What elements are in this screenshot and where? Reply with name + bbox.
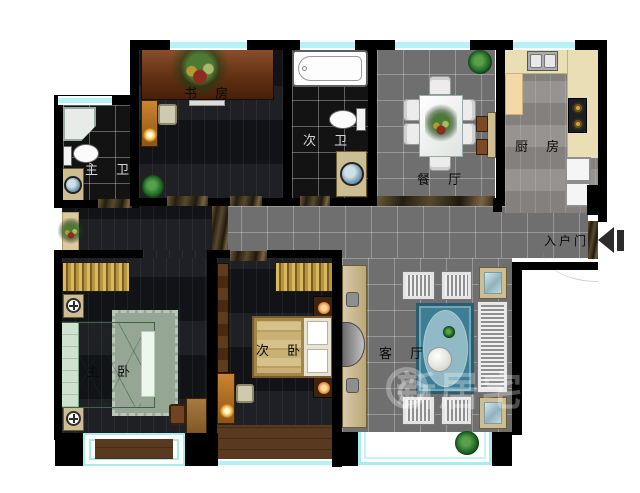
entrance-arrow-icon — [598, 227, 626, 254]
toilet-master-tank — [63, 146, 72, 166]
floorplan-canvas: 书 房 次 卫 主 卫 餐 厅 厨 房 入户门 主 卧 次 卧 客 厅 新居宅配 — [0, 0, 640, 493]
tv-cabinet-speaker-1 — [346, 292, 359, 307]
wall-study-west — [130, 40, 139, 206]
threshold-corridor-hall — [212, 206, 228, 253]
wall-bath-master-bottom-b — [132, 200, 139, 208]
nightstand-second-2 — [313, 376, 333, 398]
bathtub-inner — [298, 56, 362, 81]
lamp-symbol-icon — [66, 411, 81, 426]
wardrobe-master — [62, 262, 130, 292]
balcony-master — [83, 433, 185, 466]
kitchen-sink-basin-1 — [530, 54, 542, 68]
bar-stool-1 — [476, 116, 488, 132]
study-chair — [158, 104, 177, 125]
wall-second-top-a — [217, 250, 230, 258]
armchair-top-2 — [441, 271, 472, 300]
lamp-icon — [318, 382, 330, 394]
side-table-glass — [484, 272, 502, 294]
bathtub-drain — [302, 66, 307, 71]
dining-chair-left-1 — [403, 99, 420, 121]
wall-kitchen-stub-b — [587, 185, 600, 215]
stove-burner-2 — [572, 118, 584, 130]
study-plant-icon — [142, 175, 164, 198]
toilet-second-tank — [356, 108, 366, 131]
bar-counter — [487, 112, 496, 158]
dining-chair-left-2 — [403, 123, 420, 145]
toilet-second-bowl — [329, 110, 357, 129]
kitchen-cabinet-1 — [565, 157, 591, 182]
vanity-second — [336, 151, 367, 197]
threshold-bath-master — [98, 199, 132, 208]
bed-master-pillows — [61, 323, 79, 407]
armchair-top-1 — [402, 271, 435, 300]
watermark-text: 新居宅配 — [396, 359, 568, 417]
wall-second-living — [332, 250, 342, 425]
wall-second-top-b — [267, 250, 332, 258]
bed-second-headboard — [304, 318, 331, 376]
bedroom-second-chair — [236, 384, 254, 403]
balcony-master-floor — [95, 439, 173, 459]
balcony-second-floor — [217, 425, 332, 461]
bedroom-second-lamp-icon — [220, 404, 234, 418]
wall-study-bath — [283, 40, 292, 206]
wall-west-upper — [54, 95, 63, 208]
sink-basin-second-icon — [340, 162, 364, 186]
bed-master-blanket — [141, 331, 155, 397]
threshold-bedroom-second-door — [230, 251, 267, 261]
wall-study-bottom-c — [262, 198, 283, 206]
room-label-dining: 餐 厅 — [417, 169, 468, 188]
wall-hall-south — [512, 262, 598, 270]
wall-south-c — [332, 424, 342, 467]
pillow-1 — [307, 321, 328, 345]
entrance-arrow-head — [598, 227, 614, 253]
vanity-master — [62, 168, 84, 202]
stove-burner-1 — [572, 102, 584, 114]
wall-west-lower — [54, 250, 62, 440]
room-label-bath-master: 主 卫 — [85, 159, 136, 178]
nightstand-master-1 — [63, 294, 84, 318]
bedroom-second-cabinet — [217, 263, 229, 373]
threshold-study-door — [230, 196, 262, 206]
threshold-corridor-north — [167, 196, 208, 206]
window-bath-second — [300, 40, 355, 50]
dining-centerpiece-icon — [425, 104, 457, 146]
bedroom-master-door-opening — [143, 250, 207, 258]
wall-dining-kitchen — [496, 40, 505, 206]
wall-master-second — [207, 250, 217, 440]
entrance-arrow-bar — [617, 230, 624, 251]
lamp-icon — [318, 302, 330, 314]
room-label-kitchen: 厨 房 — [515, 136, 566, 155]
wall-south-a — [55, 433, 83, 466]
wall-south-b — [185, 433, 218, 466]
wall-bath-master-bottom-a — [55, 200, 98, 208]
sink-basin-master-icon — [64, 176, 82, 194]
room-label-bath-second: 次 卫 — [303, 130, 354, 149]
stove-icon — [568, 98, 587, 133]
kitchen-floor — [505, 48, 598, 213]
room-label-entrance: 入户门 — [544, 232, 589, 249]
room-label-bedroom-second: 次 卧 — [256, 340, 307, 359]
wardrobe-second — [275, 262, 333, 292]
bar-stool-2 — [476, 139, 488, 155]
armchair-cushion — [445, 275, 468, 296]
wall-balcony-east — [492, 432, 512, 466]
wall-bath-dining — [368, 40, 377, 206]
threshold-entrance-door — [588, 221, 598, 259]
side-table-top — [479, 267, 507, 299]
tv-cabinet-speaker-2 — [346, 378, 359, 393]
room-label-study: 书 房 — [184, 83, 235, 102]
coffee-table-plant-icon — [443, 326, 455, 338]
wall-study-bottom-b — [208, 198, 230, 206]
pillow-2 — [307, 349, 328, 373]
wall-study-bottom-a — [139, 198, 167, 206]
kitchen-sink-basin-2 — [544, 54, 556, 68]
window-kitchen — [513, 40, 575, 50]
kitchen-fridge — [505, 73, 523, 115]
threshold-bath-second-door — [300, 196, 330, 206]
wall-bath-second-bottom-b — [330, 198, 377, 206]
corridor-floor — [62, 206, 212, 253]
bedroom-master-desk — [186, 398, 207, 437]
window-dining — [395, 40, 470, 50]
kitchen-sink-icon — [527, 51, 558, 71]
corridor-rug-flower-icon — [58, 218, 84, 246]
balcony-plant-icon — [455, 431, 479, 455]
bathtub-icon — [292, 50, 368, 87]
threshold-dining — [377, 196, 495, 206]
window-bath-master — [58, 96, 112, 105]
armchair-cushion — [406, 275, 431, 296]
window-study — [170, 40, 247, 50]
nightstand-master-2 — [63, 407, 84, 431]
balcony-second-window — [217, 459, 332, 467]
nightstand-second-1 — [313, 296, 333, 318]
room-label-bedroom-master: 主 卧 — [86, 361, 137, 380]
lamp-symbol-icon — [66, 298, 81, 313]
dining-chair-top — [429, 76, 451, 95]
bedroom-master-chair — [169, 404, 186, 425]
dining-plant-icon — [468, 50, 492, 74]
study-desk-lamp-icon — [143, 128, 157, 142]
wall-balcony-west — [342, 432, 358, 466]
wall-master-top — [55, 250, 143, 258]
wall-kitchen-stub-a — [493, 198, 502, 212]
wall-bath-second-bottom-a — [283, 198, 300, 206]
